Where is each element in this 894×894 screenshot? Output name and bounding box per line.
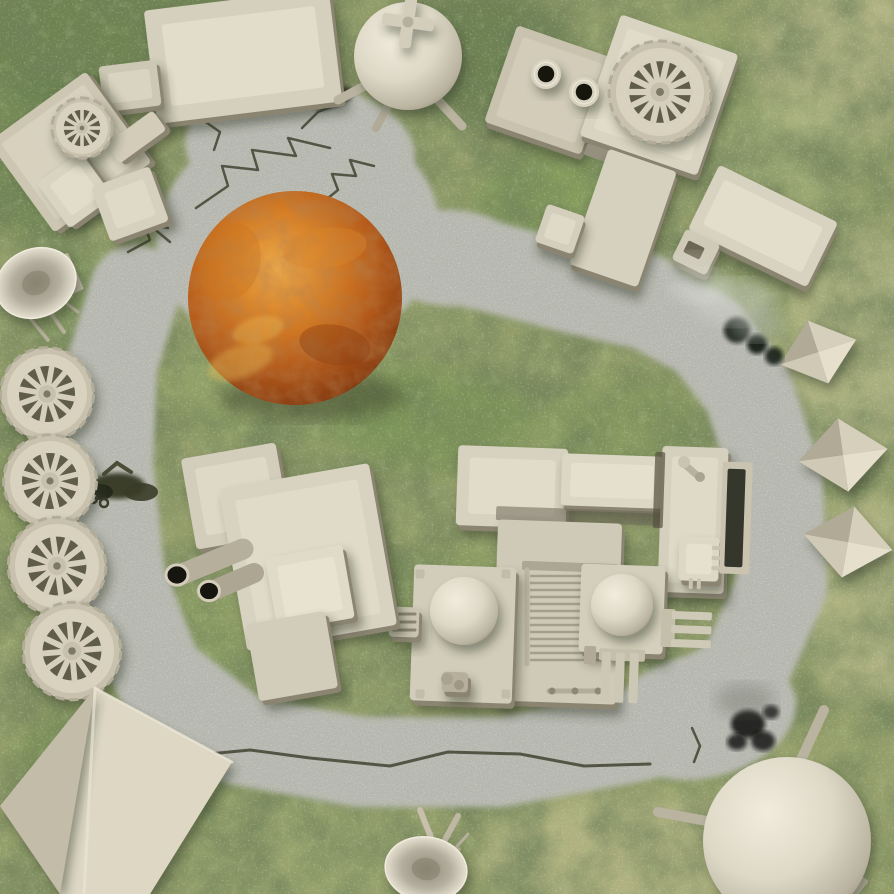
dome-west bbox=[430, 577, 498, 645]
outpost-map-render bbox=[0, 0, 894, 894]
smoke-wisp bbox=[715, 683, 775, 717]
corner-post bbox=[415, 689, 424, 698]
line bbox=[70, 623, 72, 644]
rect bbox=[246, 611, 338, 702]
warehouse-roof bbox=[144, 0, 346, 129]
smokestack bbox=[531, 59, 561, 89]
rect bbox=[600, 652, 611, 702]
pipe-clamp bbox=[549, 688, 556, 695]
antenna-base bbox=[678, 456, 690, 468]
corner-post bbox=[501, 689, 510, 698]
pump-drum bbox=[454, 680, 464, 690]
panel-glass bbox=[724, 469, 745, 568]
smoke-wisp bbox=[662, 252, 714, 276]
circle bbox=[538, 66, 555, 83]
circle bbox=[43, 390, 50, 397]
pipe-mouth bbox=[199, 581, 220, 600]
line bbox=[54, 395, 74, 398]
module-b-roof bbox=[560, 453, 666, 514]
line bbox=[80, 649, 101, 651]
vent-fan-large bbox=[609, 41, 711, 143]
rect bbox=[570, 463, 654, 500]
pipe-clamp bbox=[595, 688, 602, 695]
line bbox=[48, 367, 51, 387]
pump-drum bbox=[441, 673, 453, 685]
rect bbox=[277, 556, 343, 619]
line bbox=[20, 389, 40, 392]
rect bbox=[614, 652, 625, 702]
burn-hole bbox=[765, 347, 783, 365]
corner-post bbox=[415, 569, 424, 578]
rect bbox=[628, 653, 639, 703]
circle bbox=[46, 477, 53, 484]
line bbox=[73, 659, 75, 680]
debris bbox=[124, 483, 158, 501]
rect bbox=[671, 625, 711, 634]
ground-vent-fan bbox=[8, 517, 105, 614]
circle bbox=[53, 562, 61, 570]
line bbox=[29, 567, 50, 570]
rect bbox=[107, 69, 152, 104]
scene-canvas bbox=[0, 0, 894, 894]
pipe-clamp bbox=[572, 688, 579, 695]
rect bbox=[672, 611, 712, 620]
ground-vent-fan bbox=[23, 602, 120, 699]
dome-east bbox=[591, 574, 653, 636]
line bbox=[44, 652, 65, 654]
circle bbox=[576, 84, 593, 101]
antenna-head bbox=[695, 472, 705, 482]
smoke-wisp bbox=[731, 311, 783, 341]
prongs-east bbox=[671, 611, 712, 648]
ground-vent-fan bbox=[1, 348, 94, 441]
ground-vent-fan bbox=[4, 435, 97, 528]
rect bbox=[671, 639, 711, 648]
smokestack bbox=[569, 77, 599, 107]
circle bbox=[656, 88, 664, 96]
rect bbox=[685, 544, 712, 575]
pavilion-deco bbox=[584, 646, 597, 664]
prongs-south bbox=[600, 652, 639, 703]
workshop-extension bbox=[246, 610, 342, 706]
rect bbox=[697, 578, 701, 589]
scorch bbox=[727, 734, 747, 750]
circle bbox=[80, 126, 85, 131]
corner-post bbox=[501, 569, 510, 578]
rect bbox=[689, 578, 693, 589]
line bbox=[64, 562, 85, 565]
line bbox=[42, 401, 45, 421]
line bbox=[58, 573, 61, 594]
circle bbox=[68, 647, 76, 655]
scorch bbox=[751, 731, 775, 751]
roof-vent-fan bbox=[52, 98, 112, 158]
line bbox=[53, 538, 56, 559]
pipe-mouth bbox=[166, 565, 188, 585]
